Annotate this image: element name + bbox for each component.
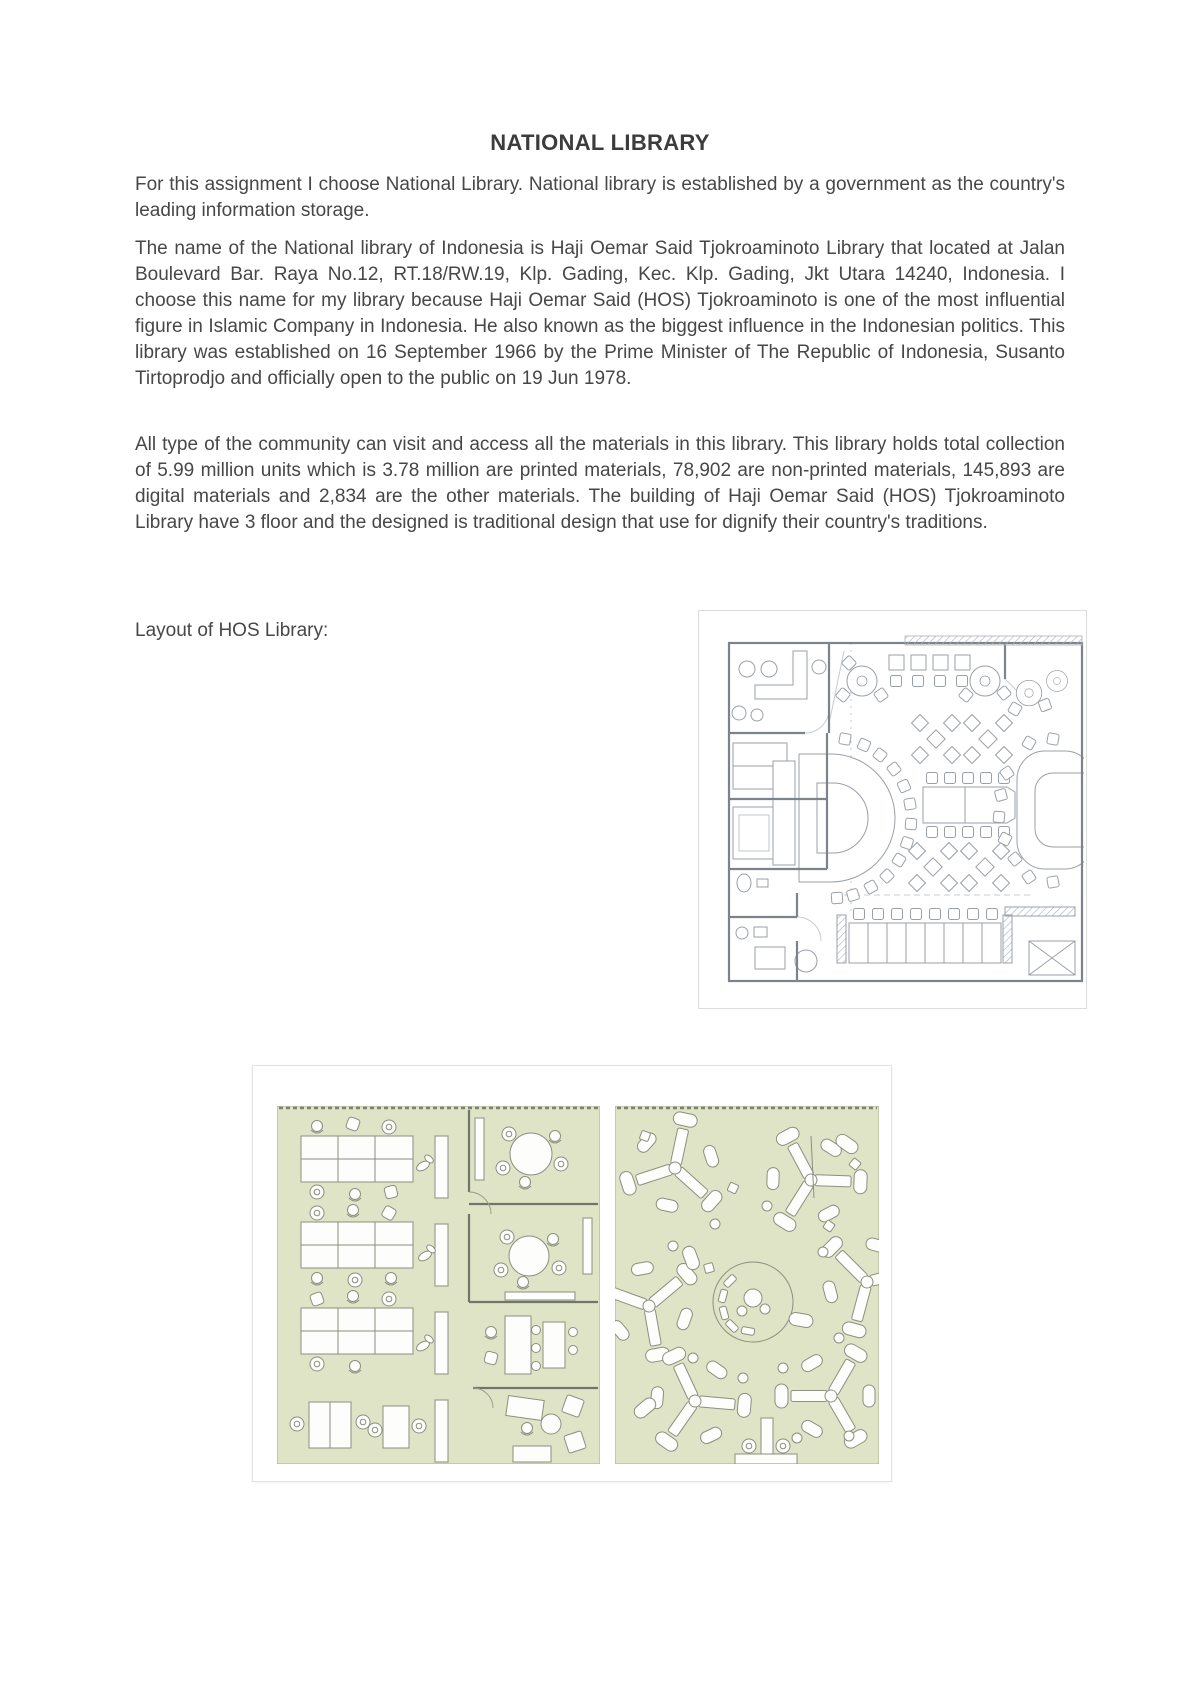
plan1-furniture <box>732 651 1084 975</box>
d-shaped-desk <box>773 733 917 904</box>
floor-plan-2-left-drawing <box>277 1106 600 1464</box>
study-carrel-row <box>837 909 1012 964</box>
paragraph-3: All type of the community can visit and … <box>135 432 1065 536</box>
long-reading-table <box>923 773 1015 838</box>
paragraph-2: The name of the National library of Indo… <box>135 236 1065 392</box>
floor-plan-figure-1 <box>698 610 1087 1009</box>
paragraph-1: For this assignment I choose National Li… <box>135 172 1065 224</box>
floor-plan-figure-2 <box>252 1065 892 1482</box>
plan1-top-hatch-band <box>905 636 1082 645</box>
floor-plan-1-drawing <box>699 611 1084 1006</box>
document-page: NATIONAL LIBRARY For this assignment I c… <box>0 0 1200 1696</box>
floor-plan-2-right-drawing <box>615 1106 879 1464</box>
layout-caption: Layout of HOS Library: <box>135 618 328 644</box>
page-title: NATIONAL LIBRARY <box>135 130 1065 156</box>
